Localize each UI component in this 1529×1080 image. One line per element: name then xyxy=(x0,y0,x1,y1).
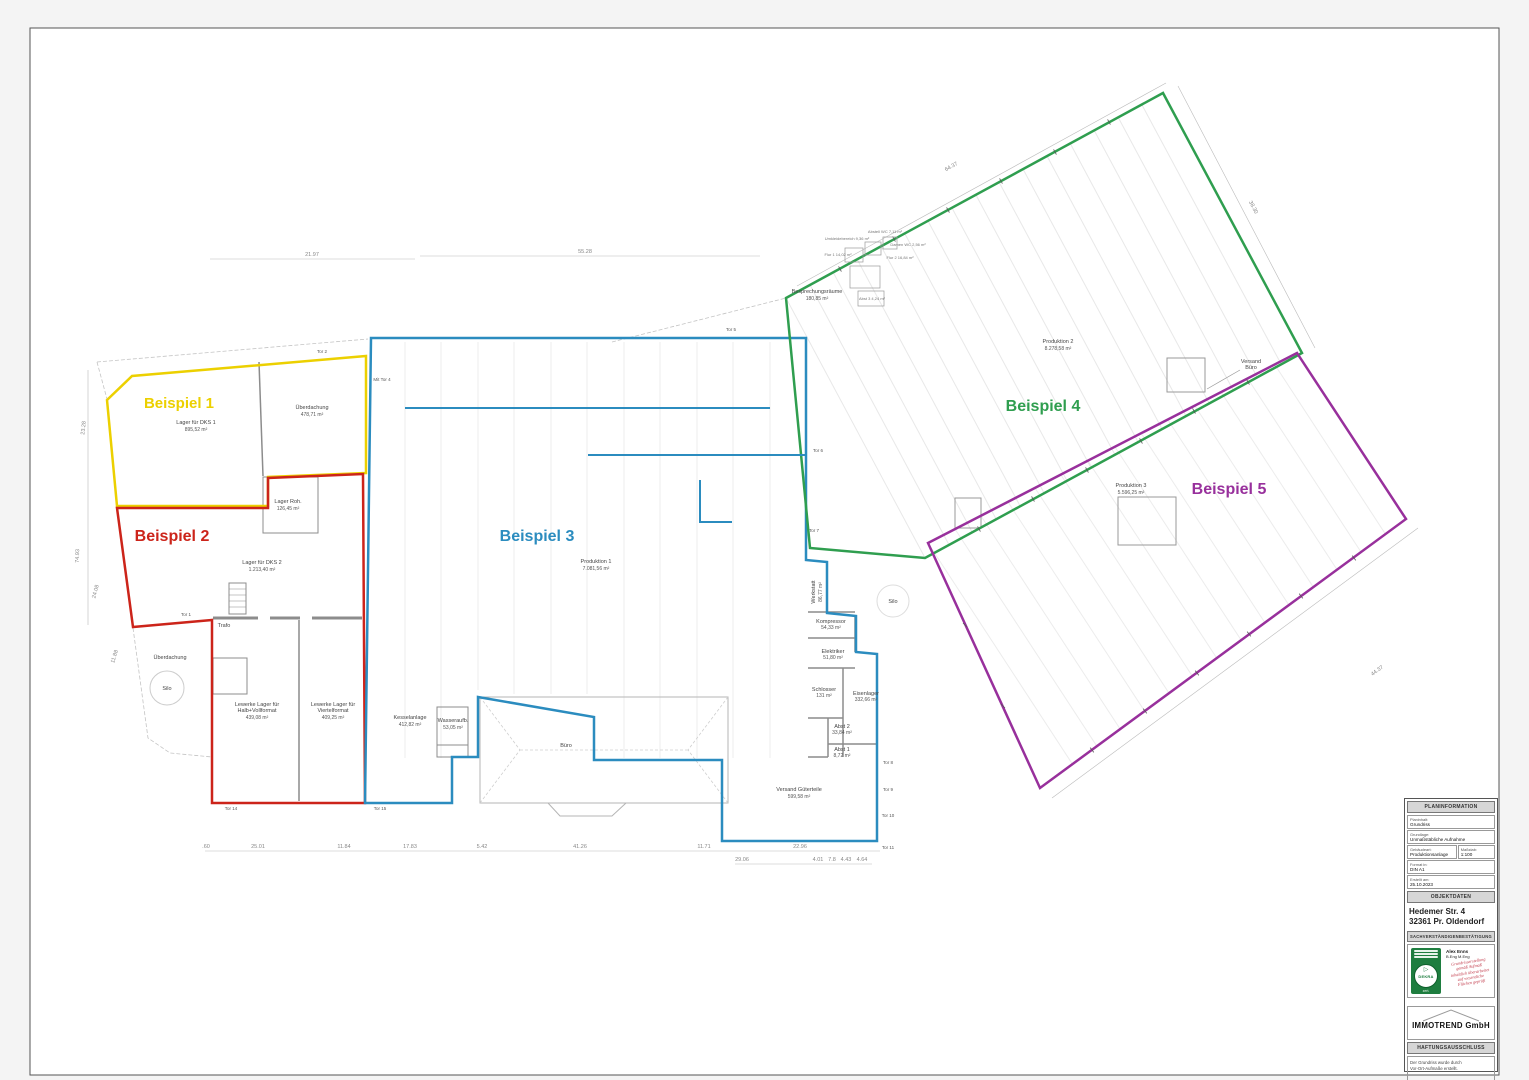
room-name: Überdachung xyxy=(295,404,328,411)
zone-label-beispiel-1: Beispiel 1 xyxy=(144,395,214,412)
gate-label: Mit Tor 4 xyxy=(373,377,391,382)
expert-identity: Alex Enns B.Eng M.Eng xyxy=(1446,949,1470,959)
room-name: Halb+Vollformat xyxy=(238,708,277,714)
sachverstaendigen-header: SACHVERSTÄNDIGENBESTÄTIGUNG xyxy=(1407,931,1495,942)
dim-label: .60 xyxy=(202,844,210,850)
room-area: 412,82 m² xyxy=(399,722,422,728)
room-name: Trafo xyxy=(218,623,231,629)
room-name: Kesselanlage xyxy=(393,715,426,721)
haftung-header: HAFTUNGSAUSSCHLUSS xyxy=(1407,1042,1495,1054)
room-name: Lager für DKS 1 xyxy=(176,420,215,426)
gate-label: Tor 11 xyxy=(882,845,895,850)
gate-label: Tor 1 xyxy=(181,612,192,617)
room-name: Viertelformat xyxy=(317,708,349,714)
cluster-label: Abst 3 4,24 m² xyxy=(859,296,886,301)
room-area: 895,52 m² xyxy=(185,427,208,433)
dekra-seal: ▷ DEKRA zert. xyxy=(1411,948,1441,994)
room-name: Werkstatt xyxy=(811,580,817,604)
dim-label: 4.43 xyxy=(841,857,852,863)
address-line-1: Hedemer Str. 4 xyxy=(1409,907,1493,917)
dim-label: 5.42 xyxy=(477,844,488,850)
row-value: 1:100 xyxy=(1461,852,1492,857)
disclaimer-text: Der Grundriss wurde durch Vor-Ort-Aufmaß… xyxy=(1407,1056,1495,1080)
gate-label: Tor 15 xyxy=(374,806,387,811)
row-value: Produktionsanlage xyxy=(1410,852,1454,857)
room-name: Produktion 2 xyxy=(1043,339,1074,345)
gate-label: Tor 5 xyxy=(726,327,737,332)
cluster-label: Flur 2 16,84 m² xyxy=(886,255,914,260)
row-value: 25.10.2023 xyxy=(1410,882,1492,887)
disclaimer-line-2: Vor-Ort-Aufmaße erstellt. xyxy=(1410,1066,1492,1072)
dim-label: 7.8 xyxy=(828,857,836,863)
room-area: 131 m² xyxy=(816,693,832,699)
dekra-arrow-icon: ▷ xyxy=(1415,967,1437,974)
company-name: IMMOTREND GmbH xyxy=(1408,1021,1494,1030)
dim-label: 29.06 xyxy=(735,857,749,863)
gate-label: Tor 2 xyxy=(317,349,328,354)
seal-subtext: zert. xyxy=(1411,989,1441,993)
room-name: Wasseraufb. xyxy=(438,718,469,724)
row-value: Grundriss xyxy=(1410,822,1492,827)
row-value: Unmaßstäbliche Aufnahme xyxy=(1410,837,1492,842)
room-area: 599,58 m² xyxy=(788,794,811,800)
room-name: Überdachung xyxy=(153,654,186,661)
dekra-wordmark: DEKRA xyxy=(1415,974,1437,979)
planinformation-header: PLANINFORMATION xyxy=(1407,801,1495,813)
room-area: 409,25 m² xyxy=(322,715,345,721)
room-area: 54,33 m² xyxy=(821,625,841,631)
room-name: Lager für DKS 2 xyxy=(242,560,281,566)
expert-degree: B.Eng M.Eng xyxy=(1446,954,1470,959)
room-name: Besprechungsräume xyxy=(792,289,843,295)
dim-label: 55.28 xyxy=(578,249,592,255)
gate-label: Tor 14 xyxy=(225,806,238,811)
room-area: 86,77 m² xyxy=(818,582,824,602)
expert-stamp-area: ▷ DEKRA zert. Alex Enns B.Eng M.Eng Grun… xyxy=(1407,944,1495,998)
dim-label: 22.96 xyxy=(793,844,807,850)
cluster-label: Abstell WC 7,11 m² xyxy=(868,229,903,234)
room-area: 439,08 m² xyxy=(246,715,269,721)
planinfo-row: Grundlage: Unmaßstäbliche Aufnahme xyxy=(1407,830,1495,844)
object-address: Hedemer Str. 4 32361 Pr. Oldendorf xyxy=(1407,905,1495,929)
immotrend-logo-box: IMMOTREND GmbH xyxy=(1407,1006,1495,1040)
gate-label: Tor 10 xyxy=(882,813,895,818)
row-value: DIN A1 xyxy=(1410,867,1492,872)
handwritten-note: Grundrisserstellung gemäß Aufmaß inhaltl… xyxy=(1440,955,1500,990)
drawing-sheet: Beispiel 1 Beispiel 2 Beispiel 3 Beispie… xyxy=(0,0,1529,1080)
room-area: 5.596,25 m² xyxy=(1118,490,1145,496)
planinfo-row: Planinhalt: Grundriss xyxy=(1407,815,1495,829)
room-name: Produktion 1 xyxy=(581,559,612,565)
room-area: 126,45 m² xyxy=(277,506,300,512)
dim-label: 11.84 xyxy=(337,844,350,850)
zone-label-beispiel-4: Beispiel 4 xyxy=(1006,398,1081,415)
seal-text-bars xyxy=(1411,948,1441,958)
room-area: 8,72 m² xyxy=(834,753,851,759)
floor-plan-canvas: Beispiel 1 Beispiel 2 Beispiel 3 Beispie… xyxy=(0,0,1529,1080)
dim-label: 21.97 xyxy=(305,252,319,258)
dim-label: 41.26 xyxy=(573,844,587,850)
room-area: 180,85 m² xyxy=(806,296,829,302)
dim-label: 11.71 xyxy=(697,844,710,850)
cluster-label: Damen WC 2,56 m² xyxy=(890,242,926,247)
room-area: 51,80 m² xyxy=(823,655,843,661)
planinfo-row: Erstellt am: 25.10.2023 xyxy=(1407,875,1495,889)
dim-label: 25.01 xyxy=(251,844,265,850)
room-name: Silo xyxy=(888,599,897,605)
title-block: PLANINFORMATION Planinhalt: Grundriss Gr… xyxy=(1404,798,1498,1072)
room-area: 332,66 m² xyxy=(855,697,878,703)
gate-label: Tor 7 xyxy=(809,528,820,533)
room-area: 478,71 m² xyxy=(301,412,324,418)
cluster-label: Umkleidebereich 9,36 m² xyxy=(825,236,870,241)
room-area: 8.278,58 m² xyxy=(1045,346,1072,352)
room-area: 1.213,40 m² xyxy=(249,567,276,573)
room-name: Silo xyxy=(162,686,171,692)
dim-label: 4.64 xyxy=(857,857,868,863)
room-name: Produktion 3 xyxy=(1116,483,1147,489)
address-line-2: 32361 Pr. Oldendorf xyxy=(1409,917,1493,927)
room-name: Versand Güterteile xyxy=(776,787,822,793)
gate-label: Tor 9 xyxy=(883,787,894,792)
sheet-frame xyxy=(30,28,1499,1075)
dim-label: 4.01 xyxy=(813,857,824,863)
dim-label: 17.83 xyxy=(403,844,417,850)
zone-label-beispiel-3: Beispiel 3 xyxy=(500,528,575,545)
dekra-circle-logo: ▷ DEKRA xyxy=(1414,964,1438,988)
zone-label-beispiel-5: Beispiel 5 xyxy=(1192,481,1267,498)
gate-label: Tor 8 xyxy=(883,760,894,765)
objektdaten-header: OBJEKTDATEN xyxy=(1407,891,1495,903)
room-name: Lager Roh. xyxy=(274,499,302,505)
dim-label: 74.93 xyxy=(75,549,81,563)
planinfo-row: Format in: DIN A1 xyxy=(1407,860,1495,874)
room-name: Büro xyxy=(1245,365,1257,371)
gate-label: Tor 6 xyxy=(813,448,824,453)
room-name: Büro xyxy=(560,743,572,749)
planinfo-row-split: Gebäudeart: Produktionsanlage Maßstab: 1… xyxy=(1407,845,1495,859)
cluster-label: Flur 1 14,02 m² xyxy=(824,252,852,257)
room-area: 53,05 m² xyxy=(443,725,463,731)
room-area: 33,84 m² xyxy=(832,730,852,736)
room-area: 7.081,56 m² xyxy=(583,566,610,572)
zone-label-beispiel-2: Beispiel 2 xyxy=(135,528,210,545)
